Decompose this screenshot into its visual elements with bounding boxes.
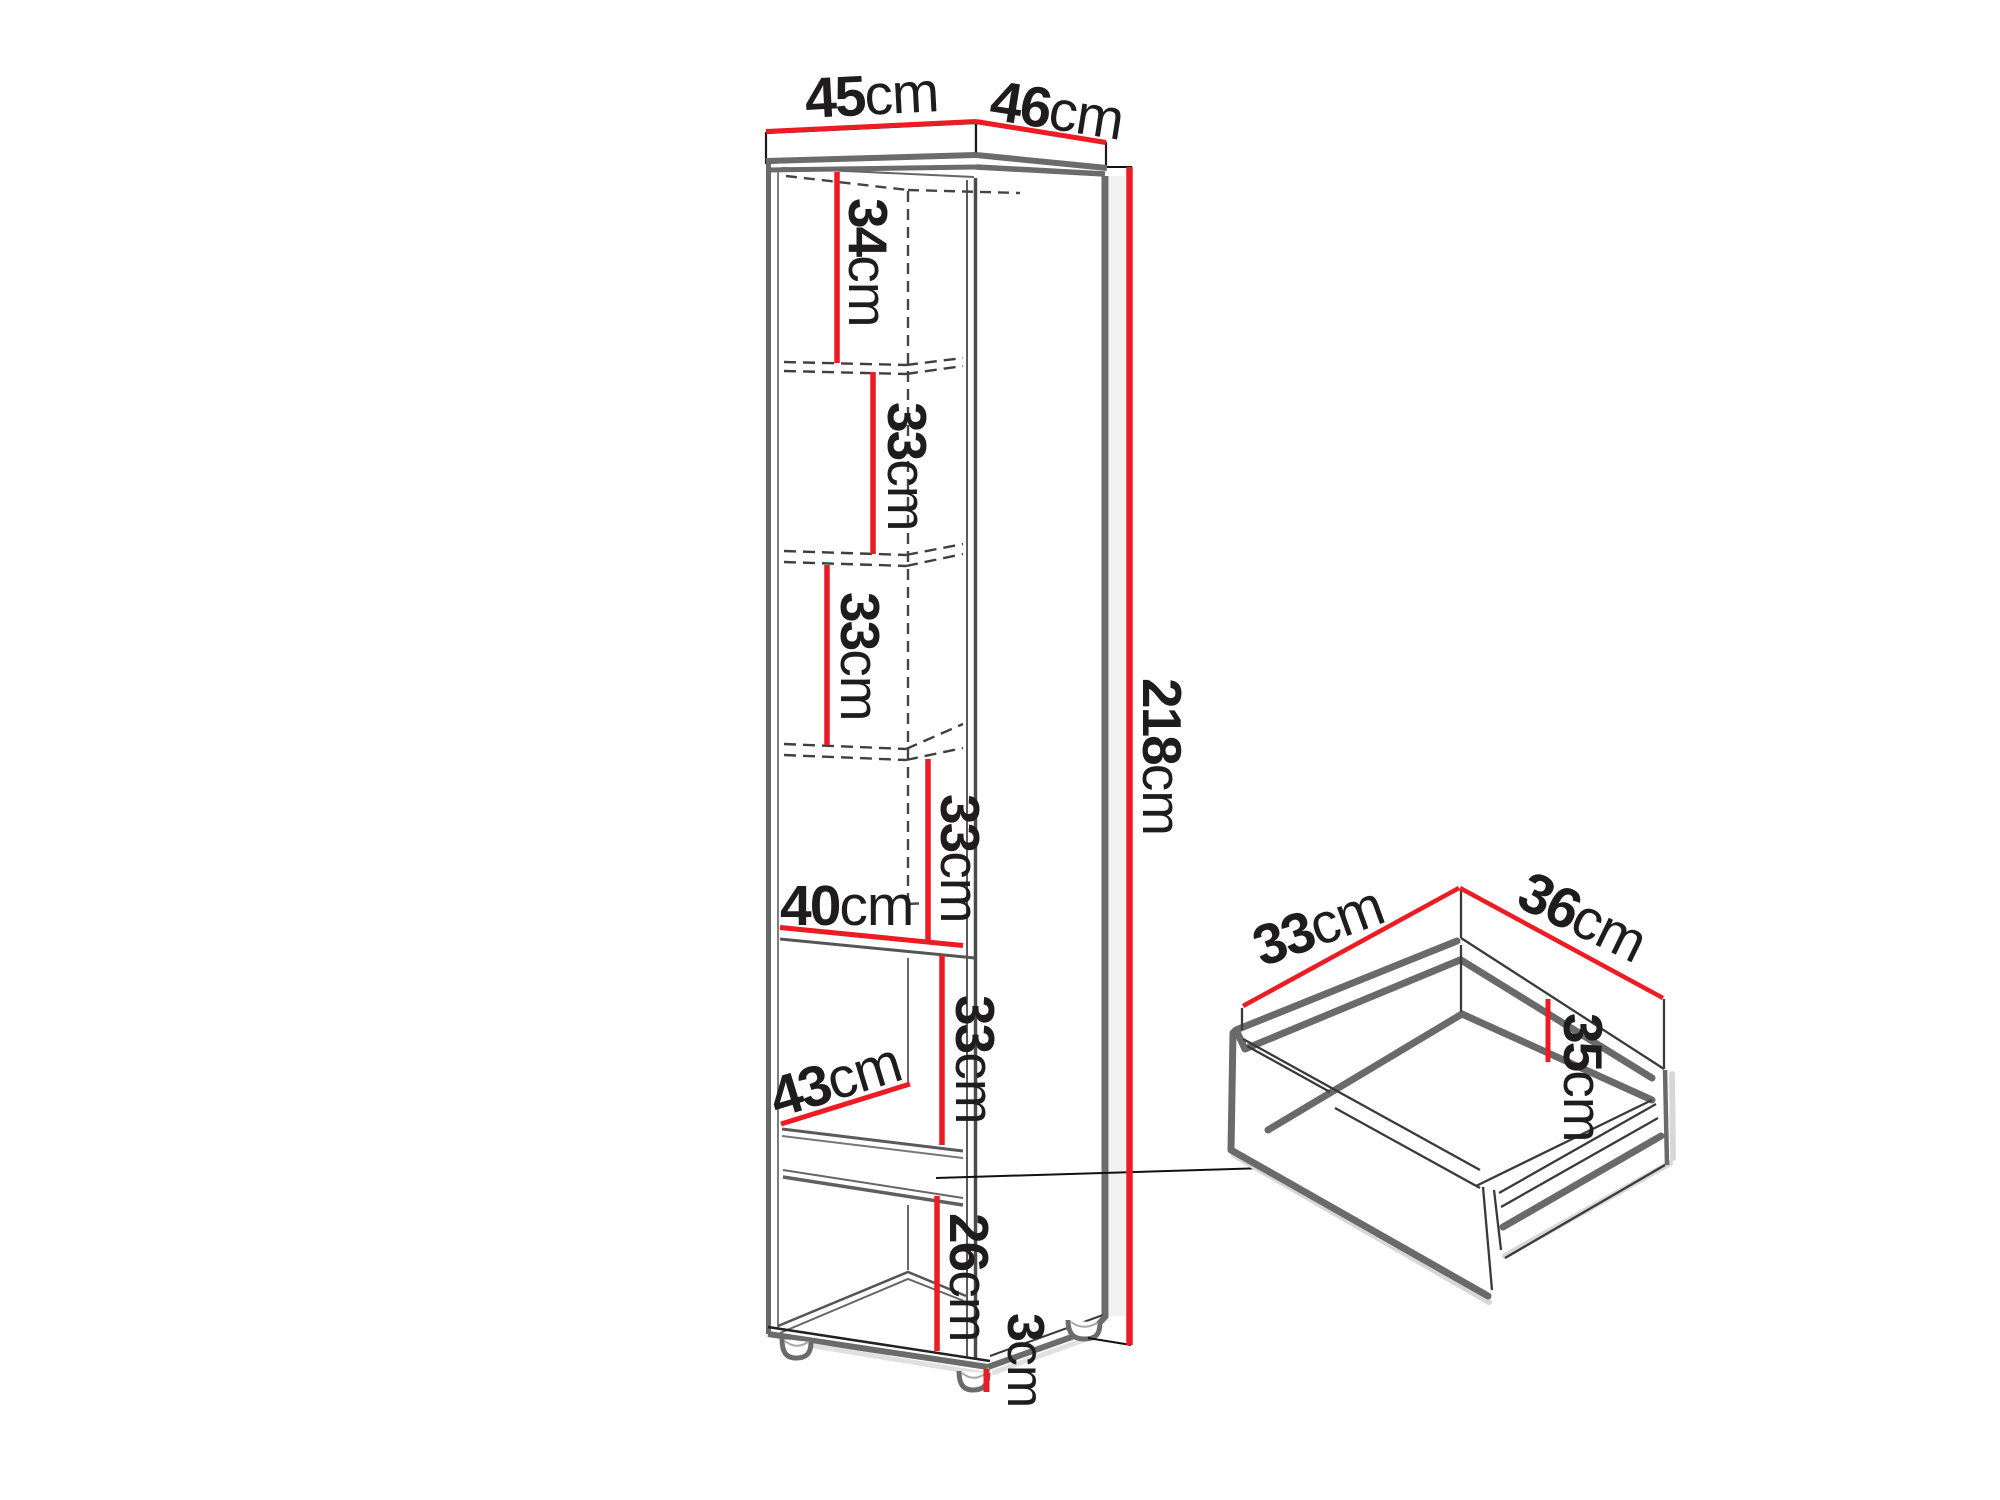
- svg-text:40cm: 40cm: [780, 874, 913, 938]
- svg-text:3cm: 3cm: [996, 1313, 1054, 1407]
- svg-text:34cm: 34cm: [837, 198, 899, 327]
- svg-text:45cm: 45cm: [803, 60, 940, 131]
- svg-text:33cm: 33cm: [876, 402, 938, 531]
- svg-text:33cm: 33cm: [944, 995, 1006, 1124]
- svg-text:33cm: 33cm: [929, 794, 991, 923]
- svg-text:33cm: 33cm: [829, 592, 891, 721]
- svg-text:35cm: 35cm: [1552, 1013, 1614, 1142]
- svg-text:26cm: 26cm: [938, 1213, 1000, 1342]
- svg-text:218cm: 218cm: [1131, 678, 1193, 835]
